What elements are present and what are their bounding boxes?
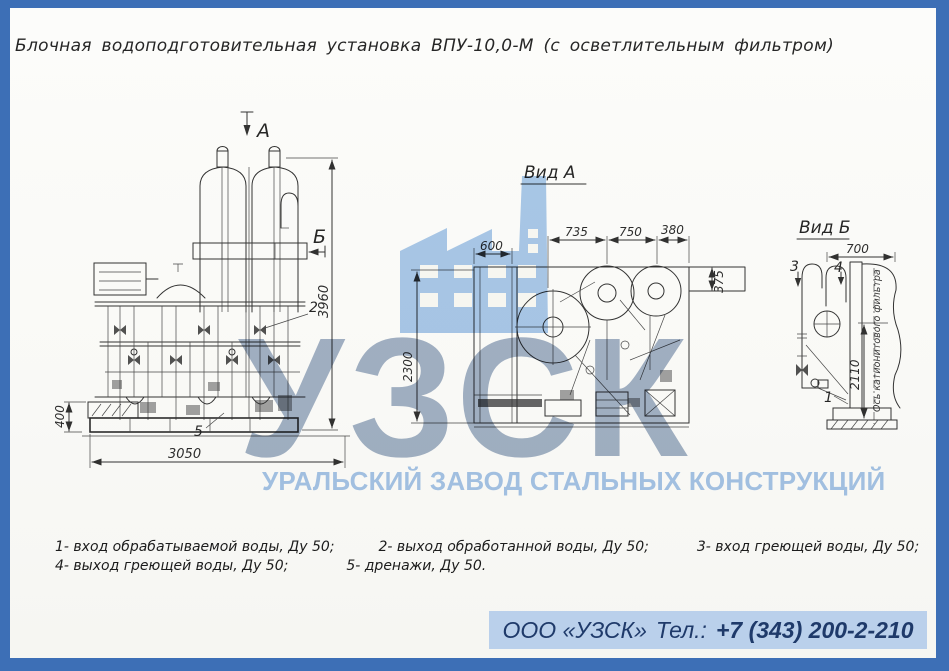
footer-phone-number: +7 (343) 200-2-210 (716, 617, 914, 644)
svg-text:Б: Б (313, 226, 326, 248)
note-item: 5- дренажи, Ду 50. (346, 557, 486, 576)
section-marker-b: Б (309, 226, 326, 257)
view-b-title: Вид Б (799, 218, 851, 238)
svg-text:750: 750 (619, 225, 642, 239)
svg-text:3050: 3050 (168, 447, 201, 462)
watermark-acronym: УЗСК (238, 313, 693, 483)
svg-text:1: 1 (824, 390, 833, 406)
dim-offset: 375 (712, 268, 726, 293)
callout-1: 1 (824, 390, 848, 406)
page-frame: Блочная водоподготовительная установка В… (0, 0, 949, 671)
svg-text:380: 380 (661, 223, 684, 237)
note-item: 4- выход греющей воды, Ду 50; (55, 557, 288, 576)
section-marker-a-label: А (255, 120, 270, 142)
footer-company: ООО «УЗСК» (502, 617, 646, 644)
service-beam (193, 243, 307, 259)
dim-width-b: 700 (827, 242, 895, 262)
control-cabinet (94, 263, 158, 295)
legend-notes: 1- вход обрабатываемой воды, Ду 50; 2- в… (55, 538, 935, 576)
svg-text:5: 5 (194, 424, 203, 440)
svg-text:400: 400 (53, 405, 67, 428)
footer-phone-label: Тел.: (656, 617, 707, 644)
note-item: 1- вход обрабатываемой воды, Ду 50; (55, 538, 335, 557)
svg-text:375: 375 (712, 270, 726, 293)
watermark-company-name: УРАЛЬСКИЙ ЗАВОД СТАЛЬНЫХ КОНСТРУКЦИЙ (262, 466, 885, 497)
filter-axis-label: Ось катионитового фильтра (872, 269, 883, 412)
svg-text:700: 700 (846, 242, 869, 256)
view-b: Вид Б (790, 218, 901, 429)
dim-foundation-height: 400 (53, 402, 86, 432)
svg-text:4: 4 (834, 260, 843, 276)
callout-3: 3 (790, 259, 801, 287)
footer-contact-band: ООО «УЗСК» Тел.: +7 (343) 200-2-210 (489, 611, 927, 649)
drawing-sheet: Блочная водоподготовительная установка В… (10, 8, 936, 658)
svg-text:735: 735 (565, 225, 588, 239)
callout-4: 4 (834, 260, 844, 285)
dim-top-spans: 735 750 380 (548, 223, 689, 288)
note-item: 2- выход обработанной воды, Ду 50; (379, 538, 649, 557)
heating-pipes (796, 264, 848, 400)
svg-text:2110: 2110 (848, 359, 862, 390)
note-item: 3- вход греющей воды, Ду 50; (697, 538, 919, 557)
